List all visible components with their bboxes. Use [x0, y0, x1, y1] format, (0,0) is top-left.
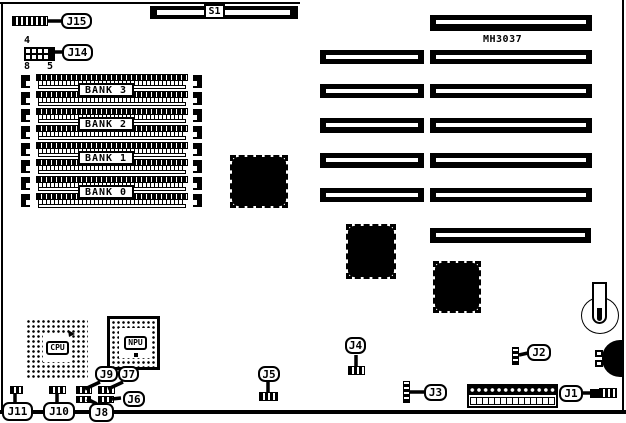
j11-label: J11	[2, 402, 33, 421]
din-pin	[595, 350, 603, 357]
j8-label: J8	[89, 403, 114, 422]
j14-label: J14	[62, 44, 93, 61]
battery-clip	[592, 282, 607, 324]
bank3-label: BANK 3	[78, 83, 134, 97]
din-pin	[595, 360, 603, 367]
j6-label: J6	[123, 391, 145, 407]
j10-label: J10	[43, 402, 75, 421]
j5-label: J5	[258, 366, 280, 382]
j1-label: J1	[559, 385, 583, 402]
bank1-label: BANK 1	[78, 151, 134, 165]
j2-label: J2	[527, 344, 551, 361]
j15-label: J15	[61, 13, 92, 29]
s1-label: S1	[204, 4, 225, 19]
j3-label: J3	[424, 384, 447, 401]
motherboard-diagram: S1 MH3037	[0, 0, 626, 423]
j9-label: J9	[95, 366, 118, 382]
bank0-label: BANK 0	[78, 185, 134, 199]
j7-label: J7	[118, 366, 139, 382]
j4-label: J4	[345, 337, 366, 354]
bank2-label: BANK 2	[78, 117, 134, 131]
